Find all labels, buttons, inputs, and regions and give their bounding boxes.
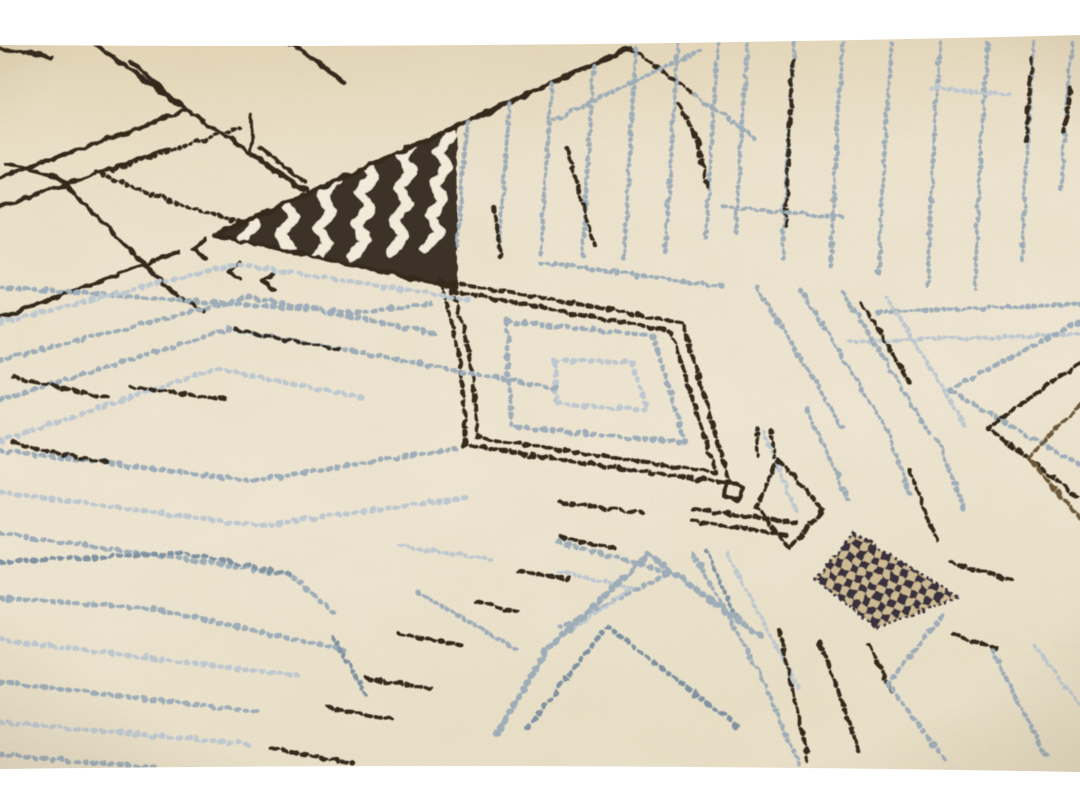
photo-border-bottom [0, 766, 1080, 810]
rug-photo-svg [0, 0, 1080, 810]
vignette [0, 28, 1080, 780]
rug-photograph [0, 0, 1080, 810]
